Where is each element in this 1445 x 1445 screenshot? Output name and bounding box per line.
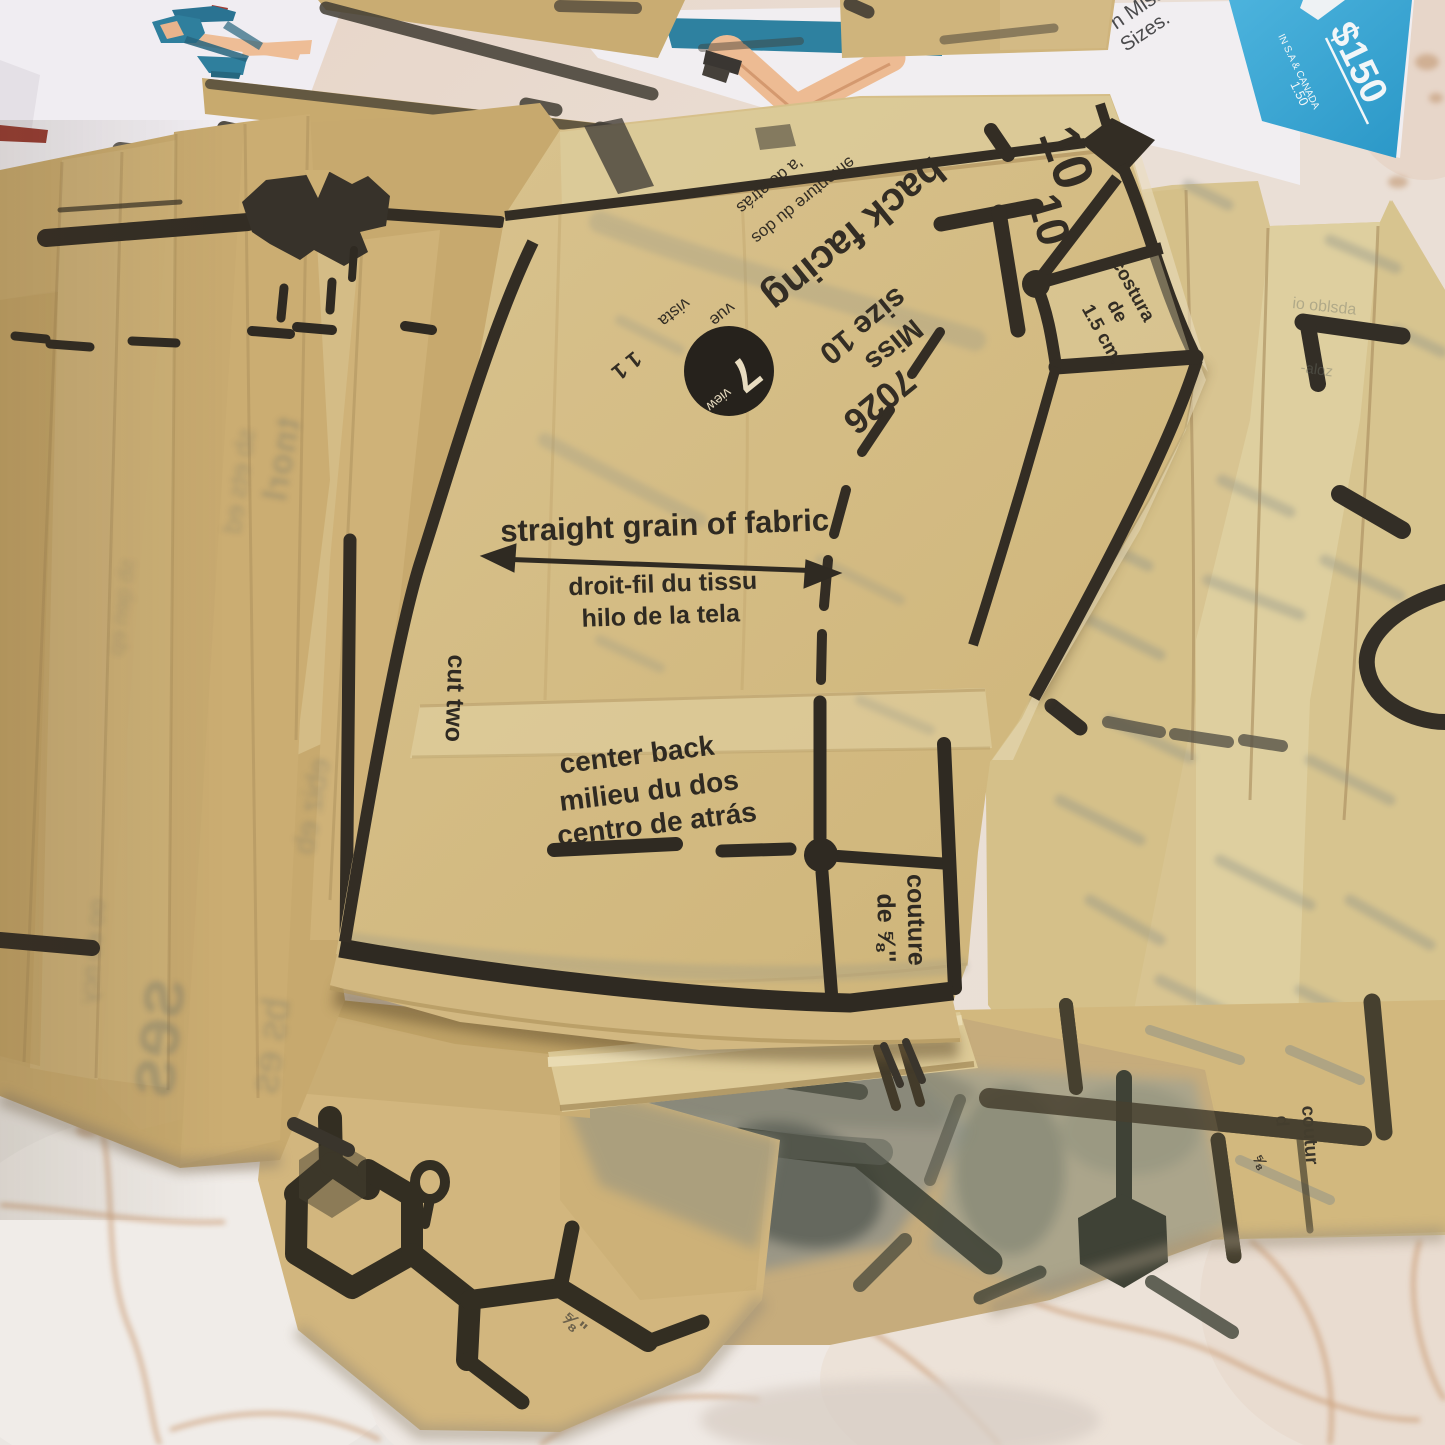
svg-text:couture: couture: [901, 874, 931, 966]
